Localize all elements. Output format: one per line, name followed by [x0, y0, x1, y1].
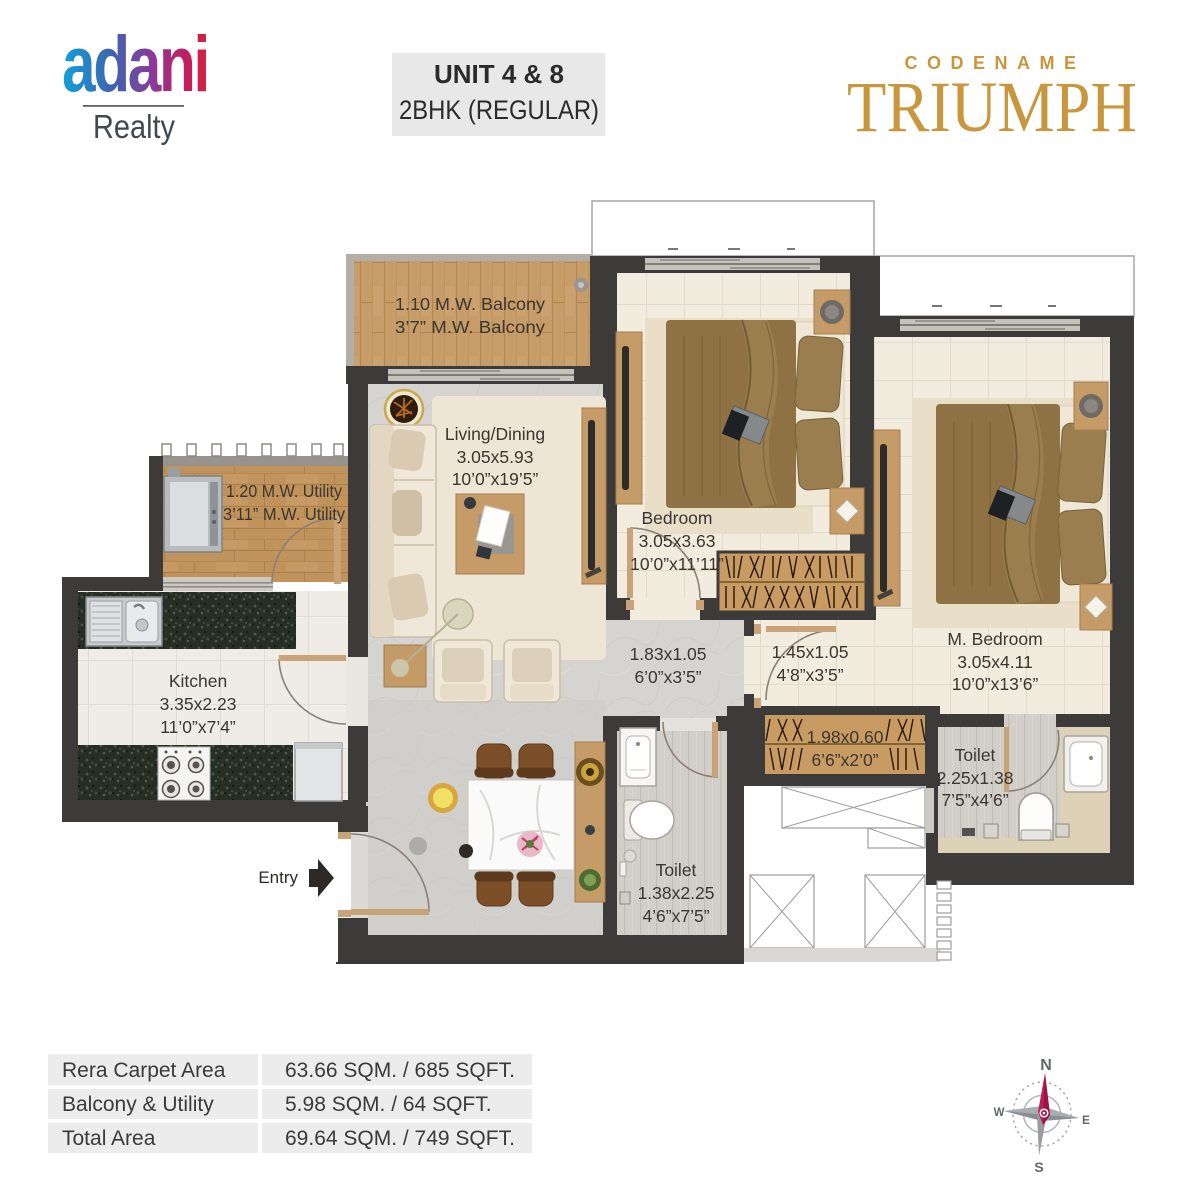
- svg-text:Bedroom: Bedroom: [641, 508, 712, 528]
- svg-text:S: S: [1034, 1159, 1043, 1175]
- svg-text:Kitchen: Kitchen: [169, 671, 227, 691]
- svg-text:Total Area: Total Area: [62, 1127, 156, 1150]
- svg-text:2.25x1.38: 2.25x1.38: [937, 768, 1014, 788]
- svg-text:1.83x1.05: 1.83x1.05: [630, 644, 707, 664]
- svg-text:69.64 SQM. / 749 SQFT.: 69.64 SQM. / 749 SQFT.: [285, 1127, 515, 1150]
- svg-text:1.45x1.05: 1.45x1.05: [772, 642, 849, 662]
- svg-text:63.66 SQM. / 685 SQFT.: 63.66 SQM. / 685 SQFT.: [285, 1059, 515, 1082]
- svg-text:1.98x0.60: 1.98x0.60: [807, 727, 884, 747]
- svg-text:W: W: [994, 1107, 1005, 1119]
- svg-text:10’0”x11’11”: 10’0”x11’11”: [630, 554, 724, 574]
- svg-text:TRIUMPH: TRIUMPH: [847, 67, 1137, 147]
- svg-text:4’8”x3’5”: 4’8”x3’5”: [776, 665, 843, 685]
- svg-text:10’0”x19’5”: 10’0”x19’5”: [452, 469, 539, 489]
- svg-text:Balcony & Utility: Balcony & Utility: [62, 1093, 214, 1116]
- svg-text:1.20 M.W. Utility: 1.20 M.W. Utility: [226, 481, 342, 501]
- svg-text:Living/Dining: Living/Dining: [445, 424, 545, 444]
- svg-text:3.35x2.23: 3.35x2.23: [160, 694, 237, 714]
- svg-text:6’0”x3’5”: 6’0”x3’5”: [634, 667, 701, 687]
- svg-text:10’0”x13’6”: 10’0”x13’6”: [952, 674, 1039, 694]
- svg-text:Realty: Realty: [93, 108, 175, 145]
- svg-text:3.05x3.63: 3.05x3.63: [639, 531, 716, 551]
- svg-text:4’6”x7’5”: 4’6”x7’5”: [642, 906, 709, 926]
- svg-text:Entry: Entry: [258, 868, 298, 887]
- svg-text:Toilet: Toilet: [656, 860, 697, 880]
- svg-text:adani: adani: [62, 19, 208, 108]
- svg-text:E: E: [1082, 1113, 1090, 1127]
- svg-text:3’7” M.W. Balcony: 3’7” M.W. Balcony: [395, 317, 545, 337]
- svg-text:1.38x2.25: 1.38x2.25: [638, 883, 715, 903]
- svg-text:Rera Carpet Area: Rera Carpet Area: [62, 1059, 226, 1082]
- svg-text:11’0”x7’4”: 11’0”x7’4”: [160, 717, 236, 737]
- svg-text:3’11” M.W. Utility: 3’11” M.W. Utility: [223, 504, 345, 524]
- svg-text:Toilet: Toilet: [955, 745, 996, 765]
- svg-text:7’5”x4’6”: 7’5”x4’6”: [941, 790, 1008, 810]
- svg-text:6’6”x2’0”: 6’6”x2’0”: [811, 750, 878, 770]
- svg-text:5.98 SQM. / 64 SQFT.: 5.98 SQM. / 64 SQFT.: [285, 1093, 492, 1116]
- svg-text:3.05x4.11: 3.05x4.11: [957, 652, 1033, 672]
- svg-text:UNIT 4 & 8: UNIT 4 & 8: [434, 59, 564, 89]
- svg-text:1.10 M.W. Balcony: 1.10 M.W. Balcony: [395, 294, 545, 314]
- svg-text:2BHK (REGULAR): 2BHK (REGULAR): [399, 95, 599, 125]
- svg-text:M. Bedroom: M. Bedroom: [947, 629, 1042, 649]
- svg-text:3.05x5.93: 3.05x5.93: [457, 447, 534, 467]
- svg-text:N: N: [1040, 1057, 1052, 1074]
